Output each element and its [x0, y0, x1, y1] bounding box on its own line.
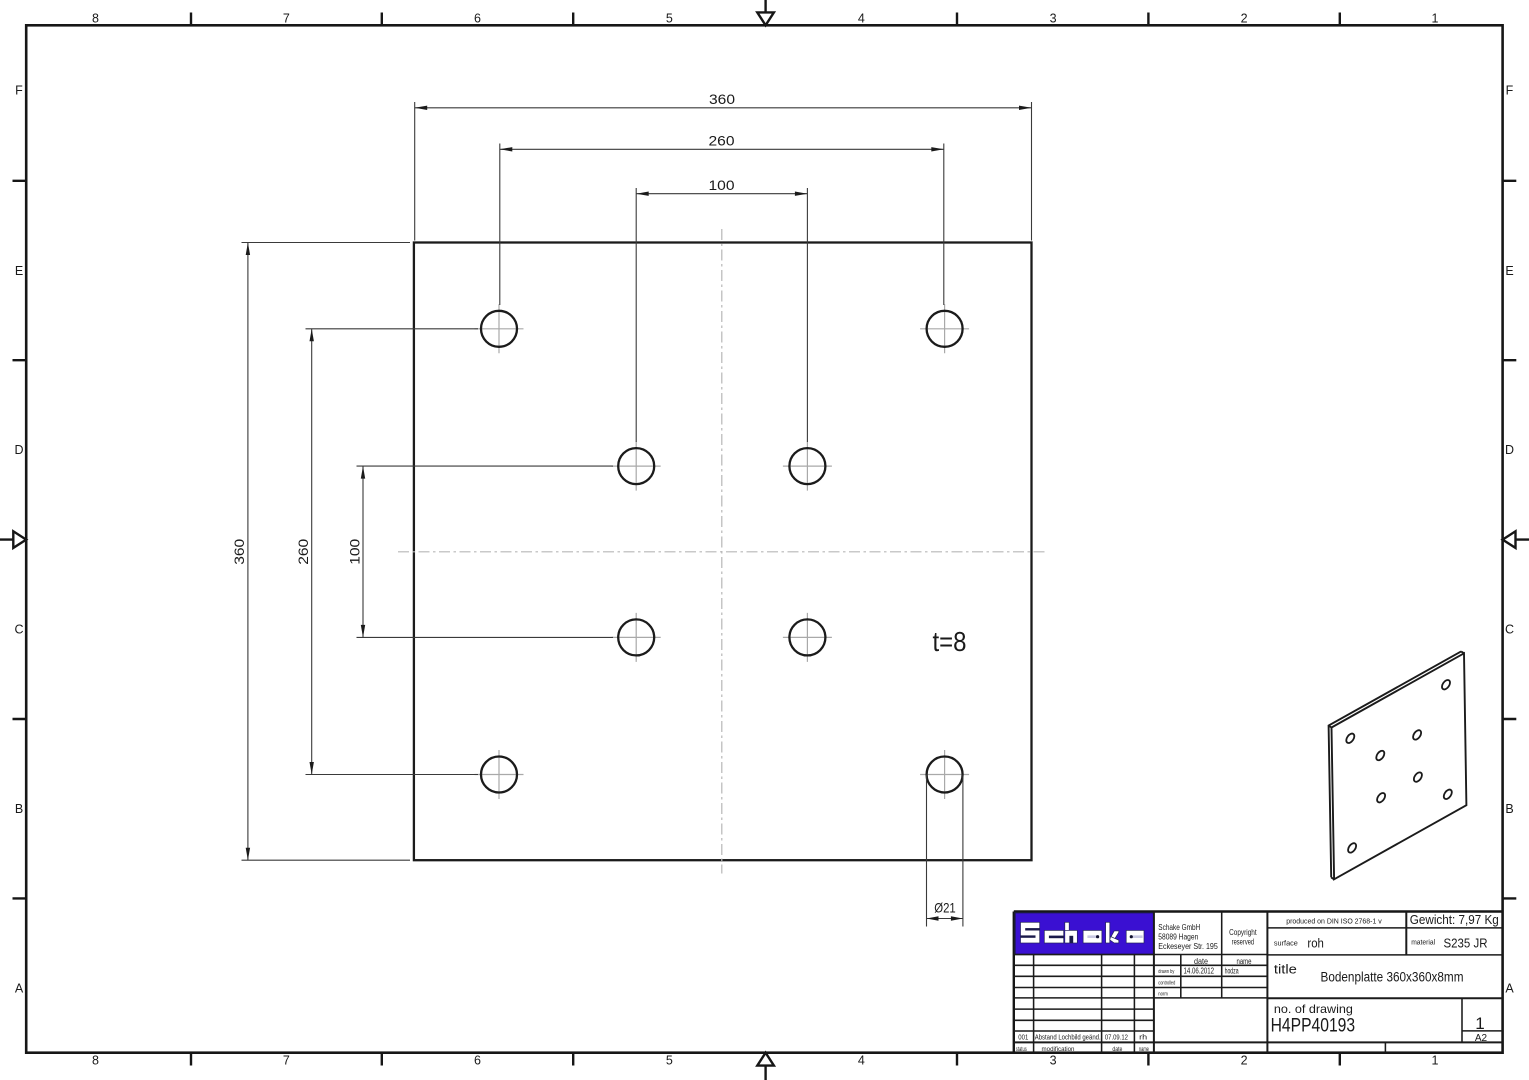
svg-text:F: F — [1506, 84, 1514, 98]
svg-text:name: name — [1237, 957, 1252, 966]
svg-text:2: 2 — [1241, 12, 1248, 26]
svg-text:6: 6 — [474, 12, 481, 26]
svg-text:3: 3 — [1050, 12, 1057, 26]
svg-text:Schake GmbH: Schake GmbH — [1158, 922, 1200, 932]
svg-text:F: F — [15, 84, 23, 98]
svg-text:E: E — [1505, 264, 1513, 278]
svg-text:3: 3 — [1050, 1054, 1057, 1068]
svg-text:norm: norm — [1158, 992, 1168, 998]
svg-text:E: E — [15, 264, 23, 278]
svg-text:7: 7 — [283, 1054, 290, 1068]
svg-text:A2: A2 — [1475, 1033, 1488, 1044]
svg-text:4: 4 — [858, 12, 865, 26]
svg-text:D: D — [1505, 443, 1514, 457]
svg-text:surface: surface — [1274, 941, 1298, 948]
svg-text:100: 100 — [346, 539, 362, 565]
svg-text:07.09.12: 07.09.12 — [1105, 1033, 1128, 1042]
svg-text:B: B — [15, 802, 23, 816]
svg-text:001: 001 — [1018, 1033, 1028, 1042]
svg-text:rh: rh — [1139, 1033, 1147, 1042]
svg-text:S235 JR: S235 JR — [1444, 936, 1488, 950]
svg-text:name: name — [1139, 1046, 1149, 1053]
svg-text:modification: modification — [1042, 1046, 1075, 1053]
svg-text:title: title — [1274, 962, 1297, 977]
svg-text:produced on DIN ISO 2768-1 v: produced on DIN ISO 2768-1 v — [1286, 916, 1382, 925]
svg-text:8: 8 — [92, 12, 99, 26]
svg-text:date: date — [1112, 1046, 1122, 1053]
svg-text:Bodenplatte 360x360x8mm: Bodenplatte 360x360x8mm — [1321, 969, 1464, 984]
svg-text:A: A — [15, 981, 24, 995]
svg-text:100: 100 — [709, 177, 735, 193]
svg-text:Gewicht: 7,97 Kg: Gewicht: 7,97 Kg — [1410, 913, 1499, 927]
svg-text:Copyright: Copyright — [1229, 927, 1257, 937]
svg-text:5: 5 — [666, 12, 673, 26]
svg-text:D: D — [14, 443, 23, 457]
svg-text:2: 2 — [1241, 1054, 1248, 1068]
svg-text:C: C — [1505, 623, 1514, 637]
svg-text:H4PP40193: H4PP40193 — [1271, 1016, 1356, 1037]
svg-text:360: 360 — [709, 91, 735, 107]
svg-text:Ø21: Ø21 — [934, 900, 956, 916]
svg-text:C: C — [14, 623, 23, 637]
svg-text:260: 260 — [295, 539, 311, 565]
svg-text:status: status — [1016, 1046, 1027, 1053]
svg-text:material: material — [1411, 940, 1435, 947]
svg-text:8: 8 — [92, 1054, 99, 1068]
svg-text:reserved: reserved — [1232, 936, 1255, 946]
svg-text:4: 4 — [858, 1054, 865, 1068]
svg-text:1: 1 — [1432, 12, 1439, 26]
svg-text:no. of drawing: no. of drawing — [1274, 1002, 1353, 1016]
svg-text:A: A — [1505, 981, 1514, 995]
svg-text:Abstand Lochbild geänd.: Abstand Lochbild geänd. — [1035, 1033, 1101, 1042]
svg-text:Eckeseyer Str. 195: Eckeseyer Str. 195 — [1158, 941, 1218, 951]
svg-text:14.06.2012: 14.06.2012 — [1184, 967, 1215, 976]
svg-text:t=8: t=8 — [933, 626, 967, 657]
svg-text:360: 360 — [231, 539, 247, 565]
svg-text:260: 260 — [709, 133, 735, 149]
svg-text:roh: roh — [1307, 936, 1324, 950]
svg-text:1: 1 — [1475, 1014, 1484, 1033]
svg-text:hodza: hodza — [1225, 966, 1239, 975]
svg-text:5: 5 — [666, 1054, 673, 1068]
svg-text:date: date — [1194, 957, 1208, 966]
svg-text:B: B — [1505, 802, 1513, 816]
svg-text:6: 6 — [474, 1054, 481, 1068]
svg-text:controlled: controlled — [1158, 981, 1175, 987]
svg-text:drawn by: drawn by — [1158, 969, 1174, 975]
svg-text:1: 1 — [1432, 1054, 1439, 1068]
svg-text:7: 7 — [283, 12, 290, 26]
svg-text:58089 Hagen: 58089 Hagen — [1158, 931, 1198, 941]
